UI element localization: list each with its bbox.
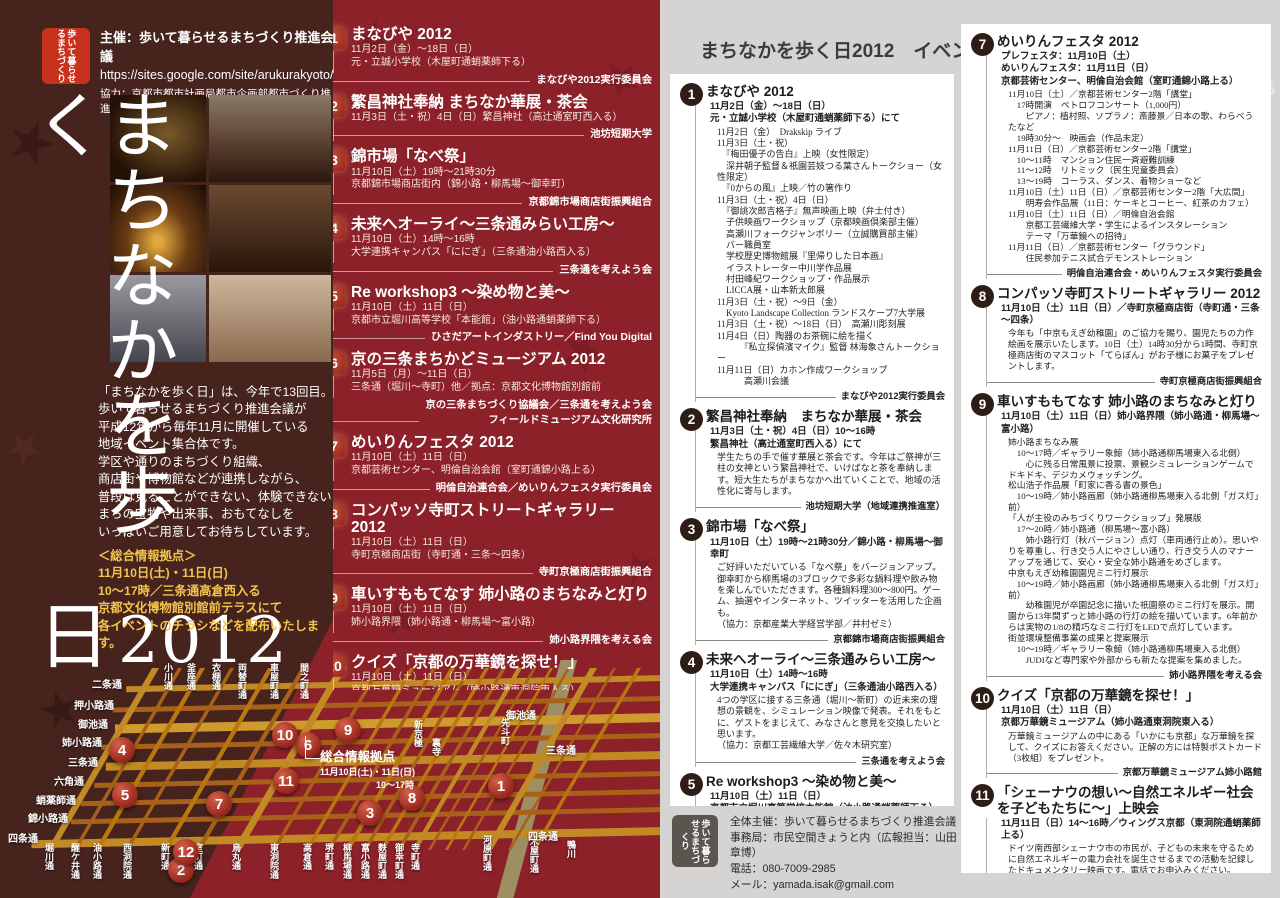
callout-connector [305,736,320,759]
street-label: 両替町通 [237,663,246,699]
detail-column-2: 7 めいりんフェスタ 2012 プレフェスタ：11月10日（土） めいりんフェス… [961,24,1271,873]
event-number-badge: 5 [680,773,703,796]
street-label: 高倉通 [302,843,311,870]
summary-event: 7 めいりんフェスタ 2012 11月10日（土）11日（日） 京都芸術センター… [351,434,652,494]
rule-line [333,421,419,422]
rule-line [333,489,430,490]
rule-line [696,397,836,398]
event-title: 未来へオーライ～三条通みらい工房～ [351,216,652,233]
rule-line [333,338,425,339]
street-line [508,668,616,850]
organizer-seal-logo: 歩いて暮らせるまちづくり [42,28,90,84]
summary-event: 10 クイズ「京都の万華鏡を探せ！」 11月10日（土）11日（日） 京都万華鏡… [351,654,652,690]
rule-line [333,271,553,272]
street-label: 蛸薬師通 [36,792,76,807]
street-label: 油小路通 [92,843,101,879]
map-marker: 4 [109,737,135,763]
street-label: 麩屋町通 [377,843,386,879]
street-label: 東洞院通 [269,843,278,879]
event-date-venue: 11月10日（土）11日（日） 京都万華鏡ミュージアム（姉小路通東洞院東入る） [1001,705,1262,730]
event-number-badge: 8 [333,503,345,525]
event-date-venue: プレフェスタ：11月10日（土） めいりんフェスタ：11月11日（日） 京都芸術… [1001,51,1262,88]
event-date-venue: 11月3日（土・祝）4日（日）10～16時 繁昌神社（高辻通室町西入る）にて [710,426,945,451]
event-organizer: 姉小路界隈を考える会 [351,631,652,646]
info-point-title: 総合情報拠点 [320,746,470,765]
street-label: 御池通 [506,707,536,722]
event-title: 車いすももてなす 姉小路のまちなみと灯り [351,586,652,603]
event-title: クイズ「京都の万華鏡を探せ！」 [351,654,652,671]
street-label: 二条通 [92,676,122,691]
street-label: 烏丸通 [231,843,240,870]
event-body-wrap: 11月10日（土）19時～21時30分／錦小路・柳馬場～御幸町 ご好評いただいて… [695,537,945,646]
event-info: 11月2日（金）～18日（日） 元・立誠小学校（木屋町通蛸薬師下る） [351,44,652,70]
rule-line [333,135,584,136]
summary-event: 4 未来へオーライ～三条通みらい工房～ 11月10日（土）14時～16時 大学連… [351,216,652,276]
summary-event: 6 京の三条まちかどミュージアム 2012 11月5日（月）～11日（日） 三条… [351,351,652,426]
event-number-badge: 8 [971,285,994,308]
event-description: 学生たちの手で催す華展と茶会です。今年はご祭神が三柱の女神という繁昌神社で、いけ… [710,452,945,497]
street-line [95,668,205,850]
event-number-badge: 6 [333,352,345,374]
street-label: 三条通 [546,742,576,757]
rule-line [696,640,828,641]
summary-event: 5 Re workshop3 ～染め物と美～ 11月10日（土）11日（日） 京… [351,284,652,344]
event-organizer: 寺町京極商店街振興組合 [351,563,652,578]
street-label: 寺町通 [410,843,419,870]
detail-event: 4 未来へオーライ～三条通みらい工房～ 11月10日（土）14時～16時 大学連… [684,652,945,766]
host-line: 主催：歩いて暮らせるまちづくり推進会議 [100,27,335,65]
rule-line [696,507,801,508]
organizer-seal-logo-gray: 歩いて暮らせるまちづくり [672,815,718,867]
rule-line [333,573,533,574]
street-label: 車屋町通 [269,663,278,699]
event-date-venue: 11月10日（土）14時～16時 大学連携キャンパス「ににぎ」（三条通油小路西入… [710,669,945,694]
event-title: 「シェーナウの想い～自然エネルギー社会を子どもたちに～」上映会 [997,785,1262,815]
rule-line [333,203,522,204]
street-label: 三条通 [68,754,98,769]
detail-event: 7 めいりんフェスタ 2012 プレフェスタ：11月10日（土） めいりんフェス… [975,34,1262,279]
event-title: 未来へオーライ～三条通みらい工房～ [706,652,945,667]
photo-street-mascot [209,95,331,182]
event-body-wrap: 11月10日（土）11日（日）／寺町京極商店街（寺町通・三条～四条） 今年も「中… [986,303,1262,387]
detail-event: 10 クイズ「京都の万華鏡を探せ！」 11月10日（土）11日（日） 京都万華鏡… [975,688,1262,779]
event-number-badge: 4 [333,217,345,239]
map-marker: 10 [272,722,298,748]
detail-column-1: 1 まなびや 2012 11月2日（金）～18日（日） 元・立誠小学校（木屋町通… [670,74,954,806]
event-organizer: まなびや2012実行委員会 [351,71,652,86]
summary-event: 9 車いすももてなす 姉小路のまちなみと灯り 11月10日（土）11日（日） 姉… [351,586,652,646]
info-point-dates: 11月10日(土)・11日(日) [320,765,470,778]
detail-event: 1 まなびや 2012 11月2日（金）～18日（日） 元・立誠小学校（木屋町通… [684,84,945,402]
event-title: まなびや 2012 [351,26,652,43]
street-label: 小川通 [163,663,172,690]
event-title: 錦市場「なべ祭」 [351,148,652,165]
street-label: 柳馬場通 [342,843,351,879]
event-number-badge: 1 [333,27,345,49]
street-label: 河原町通 [482,835,491,871]
event-description: 今年も「中京もえぎ幼稚園」のご協力を賜り、園児たちの力作絵画を展示いたします。1… [1001,328,1262,372]
event-date-venue: 11月10日（土）11日（日） 京都市立堀川高等学校本能館（油小路通蛸薬師下る） [710,791,945,806]
detail-event: 11 「シェーナウの想い～自然エネルギー社会を子どもたちに～」上映会 11月11… [975,785,1262,873]
event-organizer: 姉小路界隈を考える会 [1001,667,1262,681]
event-date-venue: 11月2日（金）～18日（日） 元・立誠小学校（木屋町通蛸薬師下る）にて [710,101,945,126]
area-label: 新京極 [413,720,422,747]
event-description: ご好評いただいている「なべ祭」をバージョンアップ。御幸町から柳馬場の3ブロックで… [710,562,945,630]
event-title: まなびや 2012 [706,84,945,99]
footer-contact: 歩いて暮らせるまちづくり 全体主催：歩いて暮らせるまちづくり推進会議 事務局：市… [672,815,962,893]
map-marker: 5 [112,782,138,808]
map-marker: 11 [273,768,299,794]
area-label: 鴨川 [566,840,575,858]
detail-event: 9 車いすももてなす 姉小路のまちなみと灯り 11月10日（土）11日（日）姉小… [975,394,1262,681]
map-marker: 7 [206,791,232,817]
detail-event: 2 繁昌神社奉納 まちなか華展・茶会 11月3日（土・祝）4日（日）10～16時… [684,409,945,512]
event-title: Re workshop3 ～染め物と美～ [706,774,945,789]
event-body-wrap: 11月3日（土・祝）4日（日）10～16時 繁昌神社（高辻通室町西入る）にて 学… [695,426,945,512]
event-organizer: 池坊短期大学 [351,125,652,140]
event-number-badge: 11 [971,784,994,807]
event-body-wrap: 11月10日（土）11日（日） 京都万華鏡ミュージアム（姉小路通東洞院東入る） … [986,705,1262,778]
event-number-badge: 7 [971,33,994,56]
event-info: 11月10日（土）11日（日） 京都市立堀川高等学校「本能館」（油小路通蛸薬師下… [351,302,652,328]
rule-line [333,81,530,82]
event-number-badge: 2 [333,95,345,117]
event-number-badge: 5 [333,285,345,307]
rule-line [987,382,1155,383]
photo-flower-table [209,275,331,362]
summary-event: 2 繁昌神社奉納 まちなか華展・茶会 11月3日（土・祝）4日（日）繁昌神社（高… [351,94,652,141]
summary-event: 3 錦市場「なべ祭」 11月10日（土）19時～21時30分 京都錦市場商店街内… [351,148,652,208]
event-info: 11月10日（土）11日（日） 京都万華鏡ミュージアム（姉小路通東洞院東入る） [351,672,652,690]
event-info: 11月3日（土・祝）4日（日）繁昌神社（高辻通室町西入る） [351,112,652,125]
rule-line [987,676,1164,677]
map-marker: 1 [488,773,514,799]
event-body-wrap: プレフェスタ：11月10日（土） めいりんフェスタ：11月11日（日） 京都芸術… [986,51,1262,279]
event-title: 錦市場「なべ祭」 [706,519,945,534]
detail-event: 3 錦市場「なべ祭」 11月10日（土）19時～21時30分／錦小路・柳馬場～御… [684,519,945,645]
intro-paragraph: 「まちなかを歩く日」は、今年で13回目。 歩いて暮らせるまちづくり推進会議が 平… [98,384,334,541]
area-label: 先斗町 [500,718,509,745]
event-description: 姉小路まちなみ展 10～17時／ギャラリー象鯨（姉小路通柳馬場東入る北側） 心に… [1001,437,1262,666]
map-marker: 12 [173,839,199,865]
event-body-wrap: 11月10日（土）14時～16時 大学連携キャンパス「ににぎ」（三条通油小路西入… [695,669,945,766]
event-summary-list: 1 まなびや 2012 11月2日（金）～18日（日） 元・立誠小学校（木屋町通… [333,0,660,690]
street-label: 堺町通 [324,843,333,870]
event-number-badge: 9 [971,393,994,416]
event-date-venue: 11月10日（土）11日（日）姉小路界隈（姉小路通・柳馬場～富小路） [1001,411,1262,436]
event-number-badge: 7 [333,435,345,457]
event-organizer: 三条通を考えよう会 [351,261,652,276]
event-number-badge: 3 [333,149,345,171]
street-label: 四条通 [528,828,558,843]
street-label: 醒ケ井通 [70,843,79,879]
event-body-wrap: 11月10日（土）11日（日）姉小路界隈（姉小路通・柳馬場～富小路） 姉小路まち… [986,411,1262,681]
street-label: 間之町通 [299,663,308,699]
rule-line [696,762,856,763]
street-label: 四条通 [8,830,38,845]
event-info: 11月5日（月）～11日（日） 三条通（堀川～寺町）他／拠点：京都文化博物館別館… [351,369,652,395]
photo-nabe-crowd [209,185,331,272]
map-marker: 3 [357,800,383,826]
event-title: 車いすももてなす 姉小路のまちなみと灯り [997,394,1262,409]
event-title: 繁昌神社奉納 まちなか華展・茶会 [706,409,945,424]
event-organizer: 京都錦市場商店街振興組合 [351,193,652,208]
street-map: 二条通 押小路通 御池通 姉小路通 三条通 六角通 蛸薬師通 錦小路通 四条通 … [0,660,660,898]
detail-event: 8 コンパッソ寺町ストリートギャラリー 2012 11月10日（土）11日（日）… [975,286,1262,387]
street-line [532,668,641,850]
event-title: めいりんフェスタ 2012 [351,434,652,451]
event-description: ドイツ南西部シェーナウ市の市民が、子どもの未来を守るために自然エネルギーの電力会… [1001,843,1262,873]
event-organizer: 京都錦市場商店街振興組合 [710,631,945,645]
street-label: 六角通 [54,773,84,788]
event-organizer: 京都万華鏡ミュージアム姉小路館 [1001,764,1262,778]
rule-line [333,641,543,642]
event-organizer: 明倫自治連合会／めいりんフェスタ実行委員会 [351,479,652,494]
event-description: 万華鏡ミュージアムの中にある「いかにも京都」な万華鏡を探して、クイズにお答えくだ… [1001,731,1262,764]
event-organizer: 寺町京極商店街振興組合 [1001,373,1262,387]
street-label: 御幸町通 [394,843,403,879]
event-organizer: ひさだアートインダストリー／Find You Digital [351,328,652,343]
event-title: めいりんフェスタ 2012 [997,34,1262,49]
event-number-badge: 9 [333,587,345,609]
event-title: コンパッソ寺町ストリートギャラリー 2012 [997,286,1262,301]
detail-event: 5 Re workshop3 ～染め物と美～ 11月10日（土）11日（日） 京… [684,774,945,806]
event-date-venue: 11月11日（日）14～16時／ウィングス京都（東洞院通蛸薬師上る） [1001,818,1262,843]
event-date-venue: 11月10日（土）11日（日）／寺町京極商店街（寺町通・三条～四条） [1001,303,1262,328]
street-label: 錦小路通 [28,810,68,825]
event-info: 11月10日（土）14時～16時 大学連携キャンパス「ににぎ」（三条通油小路西入… [351,234,652,260]
info-point-block: ＜総合情報拠点＞ 11月10日(土)・11日(日) 10～17時／三条通高倉西入… [98,548,336,653]
footer-contact-text: 全体主催：歩いて暮らせるまちづくり推進会議 事務局：市民空間きょうと内（広報担当… [730,815,962,893]
website-url: https://sites.google.com/site/arukurakyo… [100,68,335,82]
event-title: 京の三条まちかどミュージアム 2012 [351,351,652,368]
street-label: 釜座通 [186,663,195,690]
info-point-hours: 10～17時 [320,778,470,791]
street-label: 御池通 [78,716,108,731]
event-title: 繁昌神社奉納 まちなか華展・茶会 [351,94,652,111]
event-body-wrap: 11月10日（土）11日（日） 京都市立堀川高等学校本能館（油小路通蛸薬師下る）… [695,791,945,806]
event-number-badge: 1 [680,83,703,106]
event-organizer: 明倫自治連合会・めいりんフェスタ実行委員会 [1001,265,1262,279]
event-title: コンパッソ寺町ストリートギャラリー 2012 [351,502,652,536]
street-label: 富小路通 [360,843,369,879]
rule-line [987,773,1118,774]
event-info: 11月10日（土）19時～21時30分 京都錦市場商店街内（錦小路・柳馬場～御幸… [351,167,652,193]
event-description: 4つの学区に接する三条通（堀川～新町）の近未来の理想の景観を、シミュレーション映… [710,695,945,752]
rule-line [987,274,1062,275]
event-organizer: 三条通を考えよう会 [710,753,945,767]
event-title: Re workshop3 ～染め物と美～ [351,284,652,301]
summary-event: 8 コンパッソ寺町ストリートギャラリー 2012 11月10日（土）11日（日）… [351,502,652,579]
street-label: 姉小路通 [62,734,102,749]
event-body-wrap: 11月11日（日）14～16時／ウィングス京都（東洞院通蛸薬師上る） ドイツ南西… [986,818,1262,873]
event-info: 11月10日（土）11日（日） 京都芸術センター、明倫自治会館（室町通錦小路上る… [351,452,652,478]
event-body-wrap: 11月2日（金）～18日（日） 元・立誠小学校（木屋町通蛸薬師下る）にて 11月… [695,101,945,402]
street-label: 堀川通 [44,843,53,870]
event-organizer: まなびや2012実行委員会 [710,388,945,402]
street-label: 衣棚通 [211,663,220,690]
event-organizer: 京の三条まちづくり協議会／三条通を考えよう会 フィールドミュージアム文化研究所 [351,396,652,426]
event-description: 11月10日（土）／京都芸術センター2階「講堂」 17時開演 ペトロフコンサート… [1001,89,1262,264]
street-label: 西洞院通 [122,843,131,879]
event-date-venue: 11月10日（土）19時～21時30分／錦小路・柳馬場～御幸町 [710,537,945,562]
event-organizer: 池坊短期大学（地域連携推進室） [710,498,945,512]
street-label: 押小路通 [74,697,114,712]
event-info: 11月10日（土）11日（日） 寺町京極商店街（寺町通・三条～四条） [351,537,652,563]
event-number-badge: 10 [971,687,994,710]
event-info: 11月10日（土）11日（日） 姉小路界隈（姉小路通・柳馬場～富小路） [351,604,652,630]
event-number-badge: 10 [333,655,345,677]
info-point-callout: 総合情報拠点 11月10日(土)・11日(日) 10～17時 [320,746,470,791]
event-title: クイズ「京都の万華鏡を探せ！」 [997,688,1262,703]
map-marker: 9 [335,717,361,743]
event-description: 11月2日（金） Drakskip ライブ 11月3日（土・祝） 『梅田優子の告… [710,127,945,388]
summary-event: 1 まなびや 2012 11月2日（金）～18日（日） 元・立誠小学校（木屋町通… [351,26,652,86]
